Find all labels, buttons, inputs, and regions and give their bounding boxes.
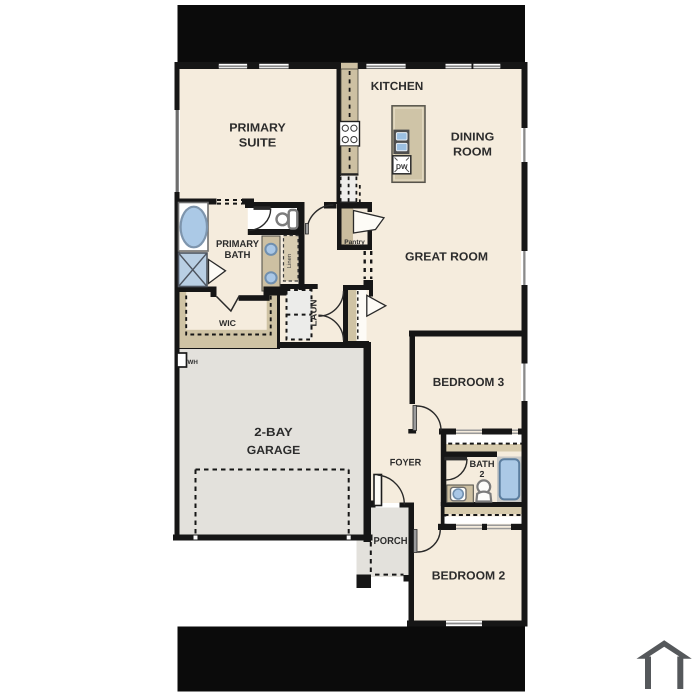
svg-text:BEDROOM 2: BEDROOM 2 — [432, 569, 506, 583]
svg-text:WH: WH — [188, 359, 199, 366]
svg-text:Pantry: Pantry — [344, 239, 365, 246]
svg-text:Linen: Linen — [286, 254, 293, 268]
svg-text:PRIMARY: PRIMARY — [216, 239, 259, 250]
svg-text:BATH: BATH — [225, 250, 251, 261]
svg-text:GREAT ROOM: GREAT ROOM — [405, 250, 488, 264]
svg-text:2: 2 — [480, 469, 485, 479]
svg-text:PORCH: PORCH — [374, 536, 408, 547]
svg-text:BATH: BATH — [470, 459, 495, 469]
svg-text:DW: DW — [396, 164, 408, 171]
svg-text:SUITE: SUITE — [239, 136, 277, 150]
svg-text:LAUN: LAUN — [309, 300, 319, 327]
svg-text:FOYER: FOYER — [390, 458, 422, 469]
svg-text:KITCHEN: KITCHEN — [371, 79, 424, 93]
svg-text:DINING: DINING — [451, 132, 495, 144]
svg-text:GARAGE: GARAGE — [247, 443, 301, 457]
svg-text:WIC: WIC — [219, 318, 236, 328]
svg-text:PRIMARY: PRIMARY — [229, 121, 286, 135]
svg-text:BEDROOM 3: BEDROOM 3 — [433, 375, 505, 389]
svg-text:2-BAY: 2-BAY — [254, 425, 293, 439]
svg-text:ROOM: ROOM — [453, 147, 492, 159]
